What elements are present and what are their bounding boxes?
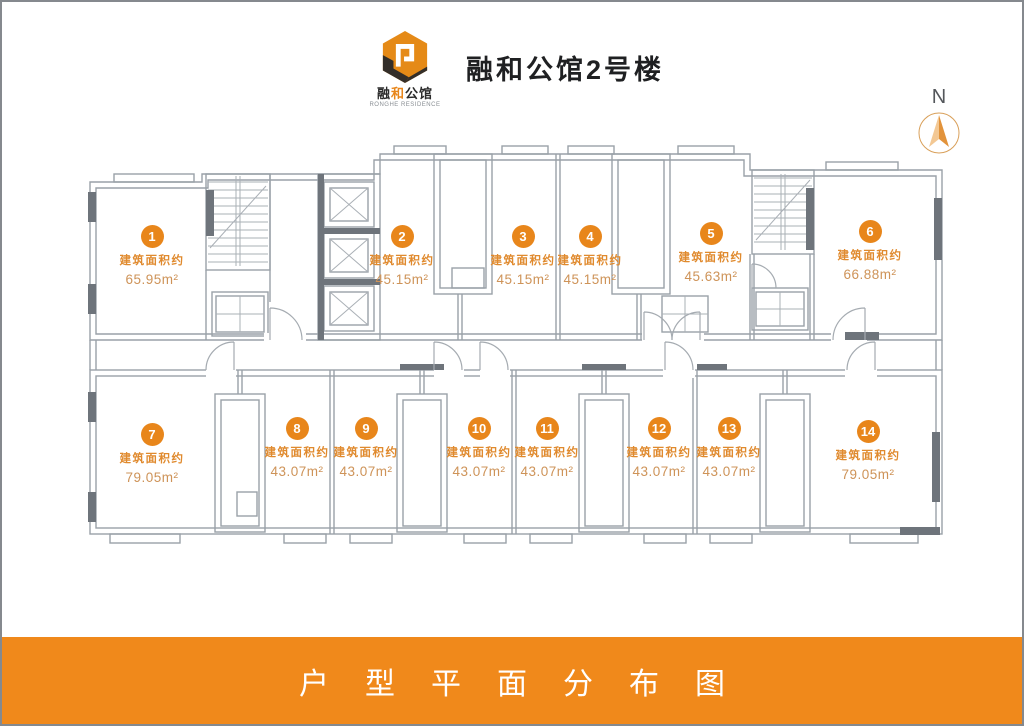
- unit-area-caption: 建筑面积约: [664, 448, 794, 460]
- unit-number-badge: 1: [141, 225, 164, 248]
- unit-area-caption: 建筑面积约: [482, 448, 612, 460]
- unit-label-7: 7 建筑面积约 79.05m²: [87, 423, 217, 484]
- unit-label-4: 4 建筑面积约 45.15m²: [525, 225, 655, 286]
- unit-area-value: 45.15m²: [525, 273, 655, 287]
- unit-area-caption: 建筑面积约: [805, 251, 935, 263]
- unit-label-2: 2 建筑面积约 45.15m²: [337, 225, 467, 286]
- unit-area-value: 79.05m²: [803, 468, 933, 482]
- unit-number-badge: 9: [355, 417, 378, 440]
- unit-area-caption: 建筑面积约: [525, 256, 655, 268]
- unit-area-caption: 建筑面积约: [87, 454, 217, 466]
- unit-area-caption: 建筑面积约: [803, 451, 933, 463]
- unit-label-14: 14 建筑面积约 79.05m²: [803, 420, 933, 481]
- unit-number-badge: 5: [700, 222, 723, 245]
- unit-label-13: 13 建筑面积约 43.07m²: [664, 417, 794, 478]
- unit-label-9: 9 建筑面积约 43.07m²: [301, 417, 431, 478]
- unit-label-5: 5 建筑面积约 45.63m²: [646, 222, 776, 283]
- unit-area-caption: 建筑面积约: [337, 256, 467, 268]
- unit-area-value: 66.88m²: [805, 268, 935, 282]
- floor-plan-drawing: [2, 2, 1024, 726]
- unit-area-value: 43.07m²: [664, 465, 794, 479]
- page: 融和公馆 RONGHE RESIDENCE 融和公馆2号楼 N: [0, 0, 1024, 726]
- unit-area-value: 45.63m²: [646, 270, 776, 284]
- unit-label-11: 11 建筑面积约 43.07m²: [482, 417, 612, 478]
- unit-number-badge: 11: [536, 417, 559, 440]
- left-stairs-treads: [208, 176, 268, 266]
- unit-number-badge: 7: [141, 423, 164, 446]
- unit-area-caption: 建筑面积约: [301, 448, 431, 460]
- unit-number-badge: 6: [859, 220, 882, 243]
- unit-number-badge: 14: [857, 420, 880, 443]
- unit-area-value: 45.15m²: [337, 273, 467, 287]
- footer-banner: 户型平面分布图: [2, 637, 1022, 724]
- unit-area-caption: 建筑面积约: [646, 253, 776, 265]
- unit-area-value: 43.07m²: [301, 465, 431, 479]
- unit-number-badge: 2: [391, 225, 414, 248]
- unit-area-value: 79.05m²: [87, 471, 217, 485]
- unit-area-value: 65.95m²: [87, 273, 217, 287]
- unit-number-badge: 13: [718, 417, 741, 440]
- unit-number-badge: 4: [579, 225, 602, 248]
- unit-area-value: 43.07m²: [482, 465, 612, 479]
- unit-label-1: 1 建筑面积约 65.95m²: [87, 225, 217, 286]
- unit-area-caption: 建筑面积约: [87, 256, 217, 268]
- unit-label-6: 6 建筑面积约 66.88m²: [805, 220, 935, 281]
- footer-banner-title: 户型平面分布图: [299, 659, 761, 703]
